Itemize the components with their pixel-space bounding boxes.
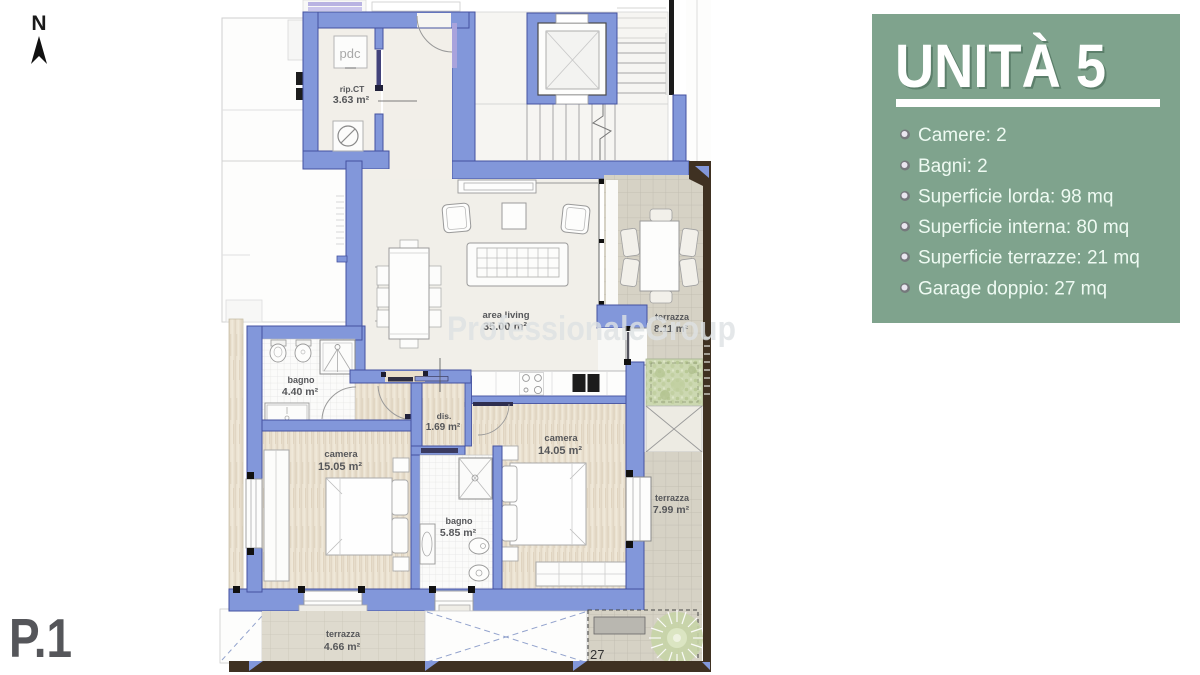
svg-text:dis.: dis. [437,411,452,421]
svg-text:Superficie lorda: 98 mq: Superficie lorda: 98 mq [918,187,1113,208]
svg-text:Bagni: 2: Bagni: 2 [918,156,988,177]
svg-text:Garage doppio: 27 mq: Garage doppio: 27 mq [918,279,1107,300]
svg-text:bagno: bagno [288,375,315,385]
svg-text:terrazza: terrazza [655,493,690,503]
svg-text:Superficie terrazze: 21 mq: Superficie terrazze: 21 mq [918,248,1140,269]
svg-text:ProfessionaleGroup: ProfessionaleGroup [447,310,736,348]
svg-text:Superficie interna: 80 mq: Superficie interna: 80 mq [918,217,1129,238]
svg-text:Camere: 2: Camere: 2 [918,125,1007,146]
svg-text:4.66 m²: 4.66 m² [324,641,361,653]
svg-text:3.63 m²: 3.63 m² [333,94,370,106]
svg-text:pdc: pdc [340,46,361,61]
svg-text:7.99 m²: 7.99 m² [653,504,690,516]
svg-text:15.05 m²: 15.05 m² [318,461,362,473]
svg-text:5.85 m²: 5.85 m² [440,527,477,539]
svg-text:P.1: P.1 [9,607,72,669]
svg-text:terrazza: terrazza [326,629,361,639]
svg-text:4.40 m²: 4.40 m² [282,386,319,398]
svg-text:14.05 m²: 14.05 m² [538,445,582,457]
svg-text:1.69 m²: 1.69 m² [426,422,461,433]
svg-text:N: N [31,12,46,35]
svg-text:camera: camera [324,449,358,460]
svg-text:27: 27 [590,647,604,662]
svg-text:camera: camera [544,433,578,444]
svg-text:rip.CT: rip.CT [340,84,365,94]
svg-text:bagno: bagno [446,516,473,526]
svg-text:UNITÀ 5: UNITÀ 5 [895,32,1106,100]
